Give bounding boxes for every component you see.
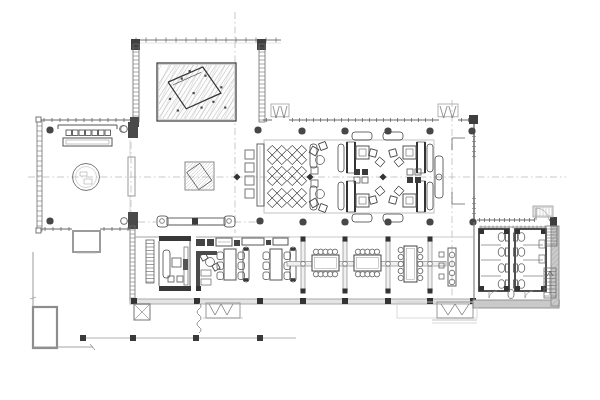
section-grid-axes <box>28 12 566 302</box>
floor-plan <box>0 0 600 400</box>
section-dining-hall <box>130 226 476 304</box>
floor-plan-svg <box>0 0 600 400</box>
section-entrances <box>134 302 477 333</box>
section-great-hall <box>128 104 557 229</box>
section-service-block <box>471 206 600 308</box>
section-north-wing <box>118 38 300 133</box>
section-entry-wing <box>36 117 130 253</box>
section-bridge-link <box>157 216 235 227</box>
